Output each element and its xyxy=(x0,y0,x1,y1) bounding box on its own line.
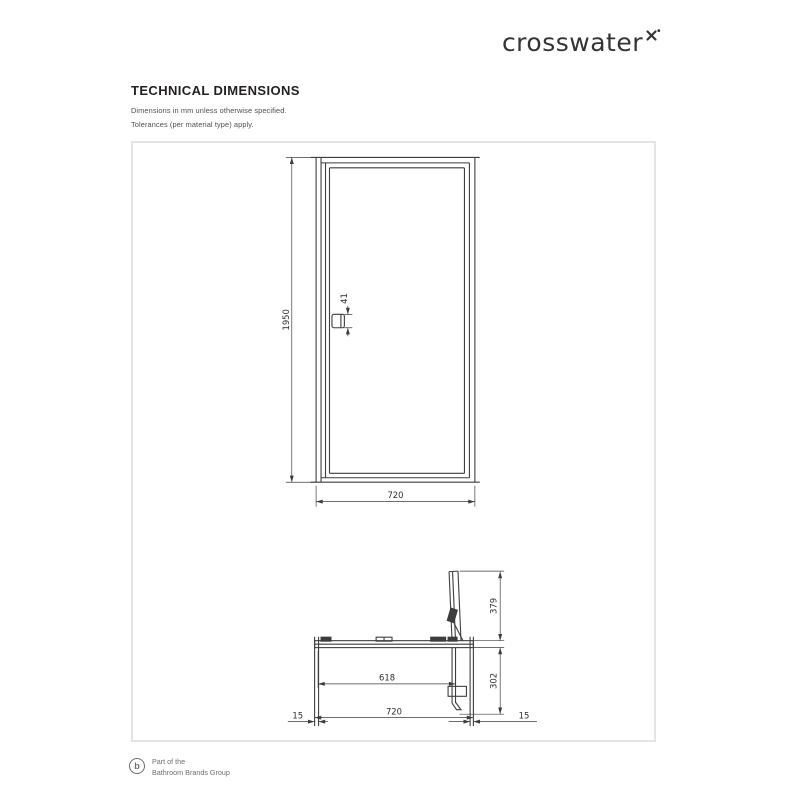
page-title: TECHNICAL DIMENSIONS xyxy=(131,83,551,98)
door-knob-plan xyxy=(447,607,458,623)
footer-text: Part of the Bathroom Brands Group xyxy=(152,757,230,778)
plan-outward-dim-label: 379 xyxy=(489,598,499,614)
note-tolerances: Tolerances (per material type) apply. xyxy=(131,120,551,129)
bathroom-brands-logo-icon: b xyxy=(129,758,145,774)
door-open-outward xyxy=(449,571,461,641)
front-elevation-dimensions xyxy=(286,157,475,506)
note-units: Dimensions in mm unless otherwise specif… xyxy=(131,106,551,115)
crosswater-logo-text: crosswater xyxy=(502,30,643,55)
crosswater-star-icon xyxy=(645,28,662,50)
door-open-inward xyxy=(452,648,461,710)
technical-drawing-box: 1950 41 720 xyxy=(131,141,656,742)
crosswater-logo: crosswater xyxy=(502,30,662,55)
plan-right-adjust-dim-label: 15 xyxy=(519,711,530,721)
plan-width-dim-label: 720 xyxy=(386,707,402,717)
door-handle-plan xyxy=(448,686,466,696)
footer: b Part of the Bathroom Brands Group xyxy=(129,757,230,778)
technical-drawing: 1950 41 720 xyxy=(133,143,654,740)
plan-view-dimensions xyxy=(288,571,537,721)
front-height-dim-label: 1950 xyxy=(281,309,291,330)
footer-line1: Part of the xyxy=(152,757,230,768)
title-block: TECHNICAL DIMENSIONS Dimensions in mm un… xyxy=(131,83,551,133)
front-elevation xyxy=(311,157,480,482)
plan-view xyxy=(315,571,474,726)
clamp-block-right xyxy=(431,637,446,641)
clamp-block-left xyxy=(321,637,331,641)
front-handle-dim-label: 41 xyxy=(339,293,349,304)
front-width-dim-label: 720 xyxy=(387,490,403,500)
plan-opening-dim-label: 618 xyxy=(379,672,395,682)
door-handle-front xyxy=(332,314,344,327)
footer-line2: Bathroom Brands Group xyxy=(152,768,230,779)
plan-inward-dim-label: 302 xyxy=(489,673,499,689)
page: crosswater TECHNICAL DIMENSIONS Dimensio… xyxy=(0,0,790,790)
plan-left-adjust-dim-label: 15 xyxy=(292,711,303,721)
